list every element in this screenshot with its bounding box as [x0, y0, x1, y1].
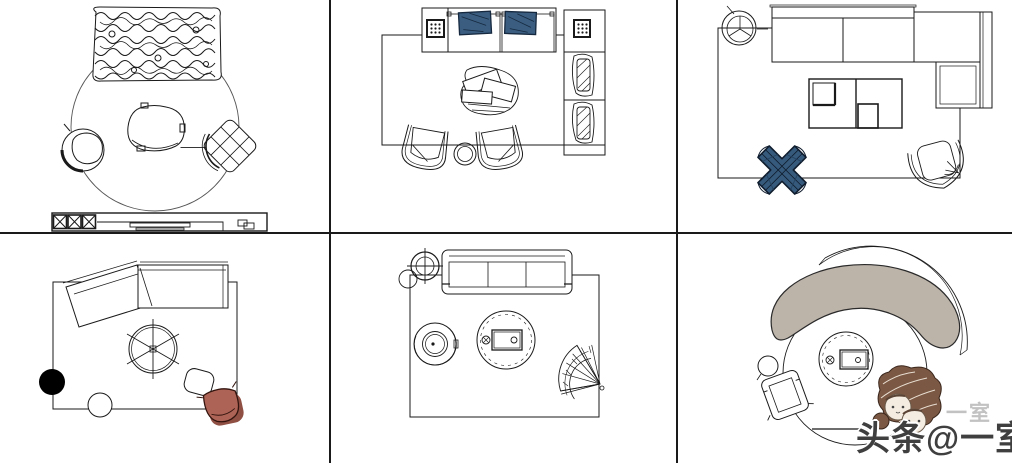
- cell-platform-sofa-set: [330, 0, 676, 232]
- angled-sectional-sofa: [63, 261, 228, 327]
- swivel-armchair: [62, 124, 104, 171]
- watermark-text: 头条@一室: [856, 411, 1012, 460]
- storage-column-with-loungers: [564, 10, 605, 155]
- chunky-knit-sofa: [93, 7, 221, 81]
- black-pouf: [39, 369, 65, 395]
- furniture-blocks-sheet: 一室 头条@一室: [0, 0, 1012, 463]
- round-coffee-table: [477, 311, 535, 369]
- cell-angled-sectional: [0, 232, 329, 463]
- quilted-pouf-chair: [181, 108, 259, 186]
- triangular-coffee-table: [128, 103, 185, 151]
- platform-sofa: [422, 8, 556, 52]
- blue-cushion-left: [458, 11, 491, 35]
- round-armchair: [906, 137, 971, 196]
- cell-l-shaped-sectional: [677, 0, 1012, 232]
- round-coffee-table: [819, 332, 873, 386]
- panel-coffee-table: [809, 79, 902, 128]
- potted-plant: [399, 248, 443, 288]
- area-rug: [410, 275, 599, 417]
- grid-horizontal-divider: [0, 232, 1012, 234]
- three-seat-sofa: [442, 250, 572, 294]
- knot-pouf: [742, 130, 823, 211]
- spoke-round-table: [127, 319, 179, 379]
- blue-cushion-right: [505, 11, 537, 34]
- magazine-coffee-table: [461, 67, 519, 115]
- white-pouf: [88, 393, 112, 417]
- cell-three-seat-sofa: [330, 232, 676, 463]
- square-armchair: [754, 367, 814, 423]
- round-armchair: [414, 323, 458, 365]
- round-side-table: [454, 143, 476, 165]
- potted-plant: [722, 6, 768, 45]
- armchair-right: [474, 125, 525, 173]
- fan-pouf: [559, 345, 604, 399]
- tv-cabinet: [52, 213, 267, 231]
- curved-taupe-sofa: [771, 265, 960, 348]
- armchair-left: [400, 124, 451, 172]
- cell-round-rug-knit-sofa: [0, 0, 329, 232]
